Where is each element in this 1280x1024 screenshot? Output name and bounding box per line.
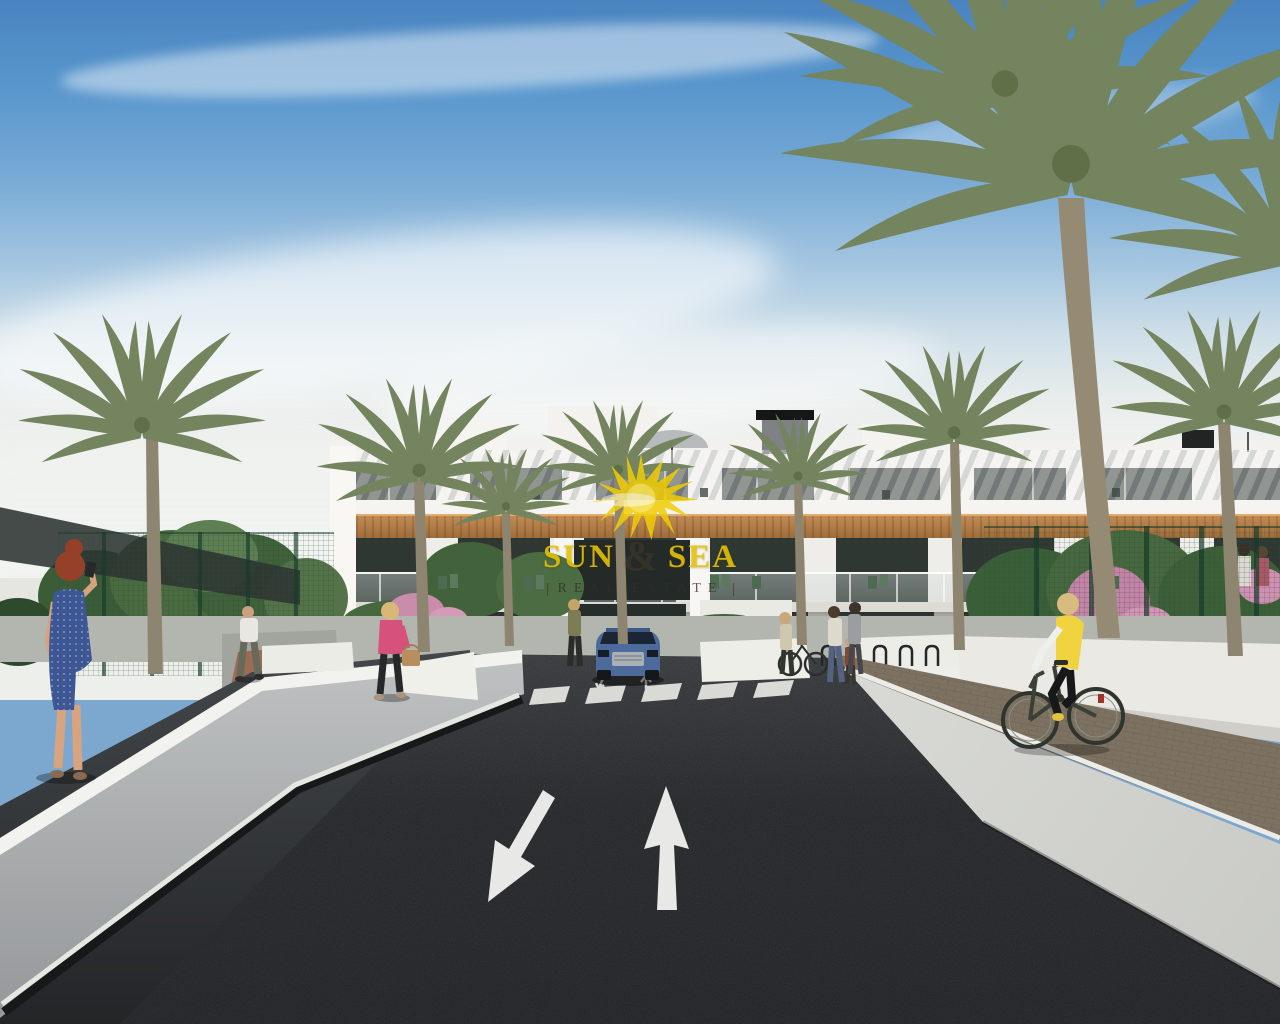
subtitle-bar xyxy=(733,583,734,596)
subtitle-bar xyxy=(547,583,548,596)
watermark: SUN & SEA REAL ESTATE xyxy=(498,452,783,597)
watermark-word-sea: SEA xyxy=(668,541,738,574)
watermark-subtitle-row: REAL ESTATE xyxy=(498,581,783,597)
sun-logo-icon xyxy=(566,452,716,544)
scene-render: SUN & SEA REAL ESTATE xyxy=(0,0,1280,1024)
palm-trunks xyxy=(146,198,1280,674)
watermark-title: SUN & SEA xyxy=(498,536,783,578)
watermark-word-sun: SUN xyxy=(543,541,615,574)
watermark-subtitle: REAL ESTATE xyxy=(558,581,724,597)
watermark-ampersand: & xyxy=(623,536,660,578)
